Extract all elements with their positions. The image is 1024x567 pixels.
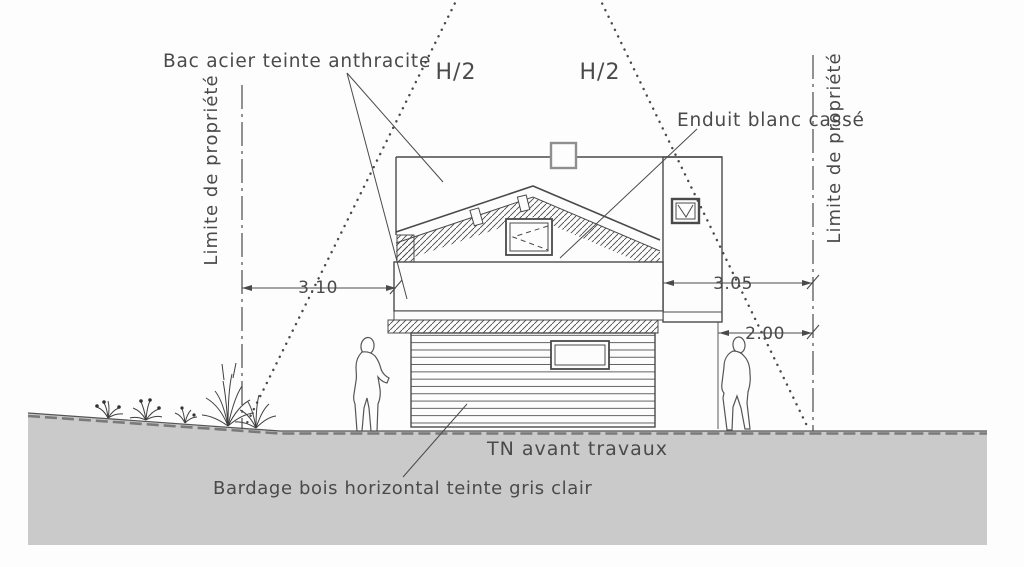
property-label-right: Limite de propriété	[824, 52, 845, 243]
h2-label-left: H/2	[436, 60, 477, 85]
fascia-strip	[394, 311, 663, 320]
person-right-body	[722, 351, 751, 430]
dim-arrow-left	[719, 330, 729, 336]
label-bac-acier: Bac acier teinte anthracite	[163, 51, 431, 72]
label-enduit: Enduit blanc cassé	[677, 110, 865, 131]
label-tn: TN avant travaux	[486, 438, 668, 460]
elevation-drawing-canvas: H/2 H/2 Limite de propriété Limite de pr…	[0, 0, 1024, 567]
grass-clump-tall	[202, 363, 254, 426]
dim-value-200: 2.00	[745, 324, 785, 344]
grass-clump-right	[235, 395, 276, 428]
fascia-band	[394, 262, 663, 311]
dim-value-310: 3.10	[298, 278, 338, 298]
person-right	[722, 336, 751, 430]
property-limit-left: Limite de propriété	[201, 74, 242, 429]
property-label-left: Limite de propriété	[201, 74, 222, 265]
dim-arrow-left	[242, 285, 252, 291]
label-bardage: Bardage bois horizontal teinte gris clai…	[213, 478, 592, 499]
h2-label-right: H/2	[580, 60, 621, 85]
eave-wall-hatch	[397, 235, 414, 262]
cladding-wall	[411, 333, 655, 427]
chimney	[551, 143, 576, 168]
vegetation	[95, 363, 276, 428]
dim-value-305: 3.05	[713, 274, 753, 294]
person-left	[354, 337, 389, 431]
floor-hatch-strip	[388, 320, 658, 333]
elevation-drawing: H/2 H/2 Limite de propriété Limite de pr…	[0, 0, 1024, 567]
shrub-3	[175, 406, 197, 423]
shrub-2	[130, 398, 162, 420]
person-left-body	[354, 352, 389, 431]
shrub-1	[95, 400, 123, 418]
right-wing-wall	[663, 157, 722, 322]
dimension-310: 3.10	[242, 278, 402, 298]
